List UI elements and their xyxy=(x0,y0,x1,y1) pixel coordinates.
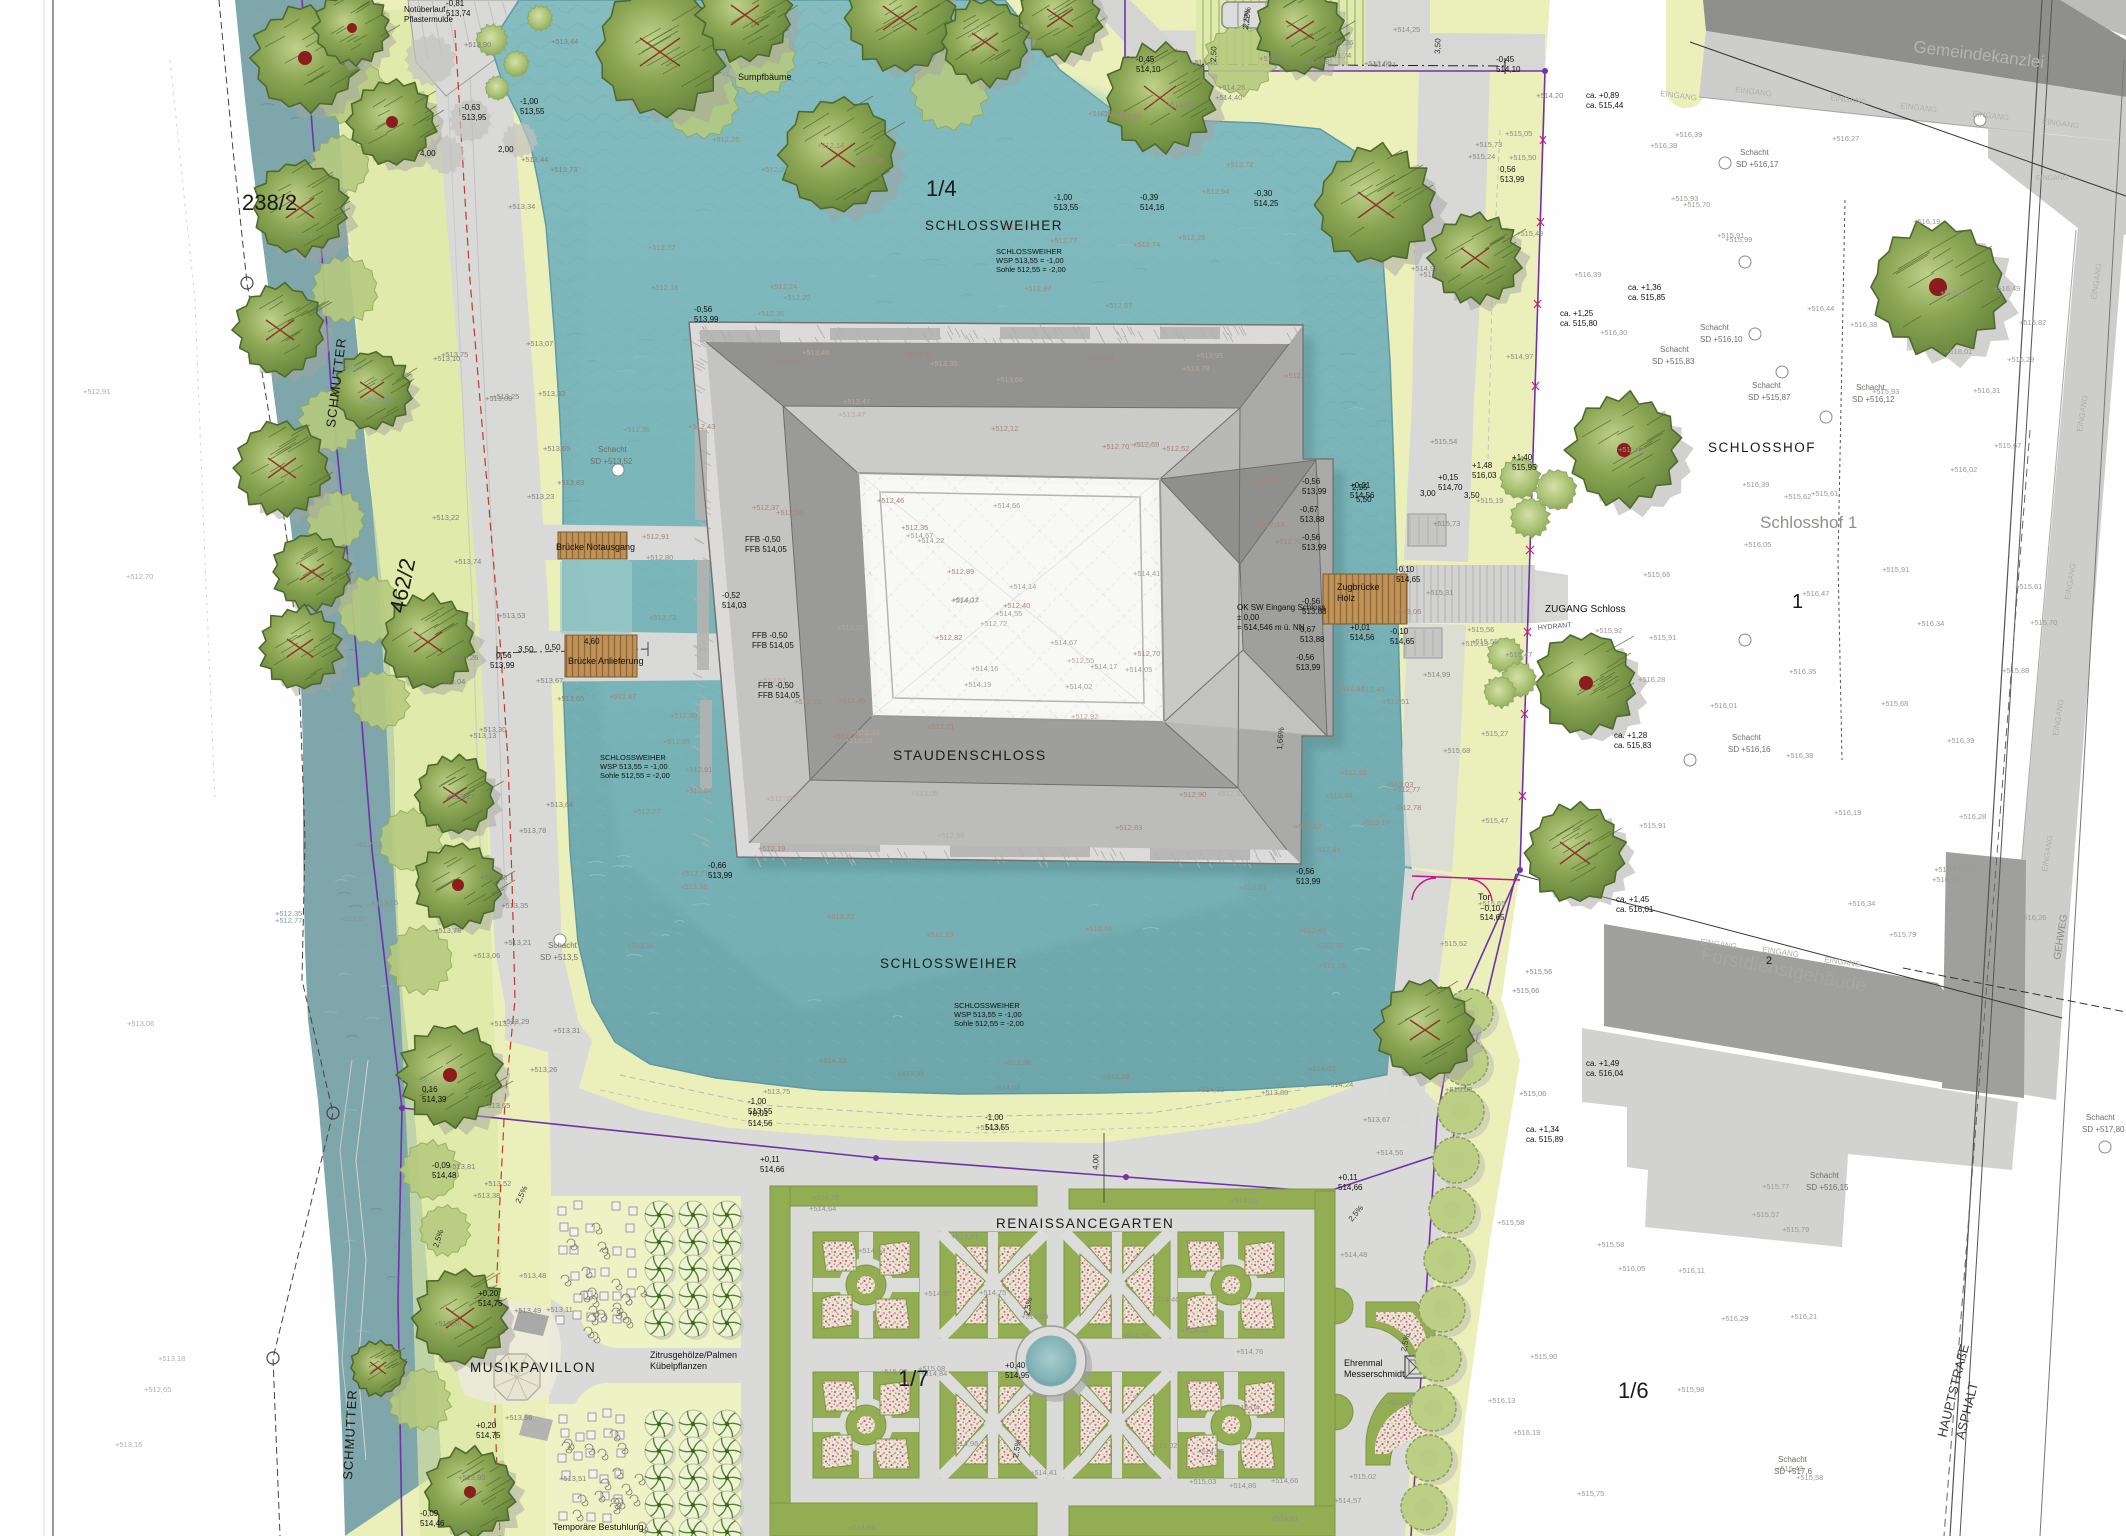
svg-text:514,75: 514,75 xyxy=(476,1431,501,1440)
svg-text:+514,67: +514,67 xyxy=(1050,638,1077,647)
svg-text:+512,72: +512,72 xyxy=(1226,160,1253,169)
svg-text:Messerschmidt: Messerschmidt xyxy=(1344,1369,1405,1379)
svg-text:Sohle 512,55 = -2,00: Sohle 512,55 = -2,00 xyxy=(954,1019,1024,1028)
svg-text:513,99: 513,99 xyxy=(1296,877,1321,886)
svg-text:+512,70: +512,70 xyxy=(1133,649,1160,658)
svg-text:ca. 515,85: ca. 515,85 xyxy=(1628,293,1666,302)
svg-text:+516,30: +516,30 xyxy=(1600,328,1627,337)
svg-text:+0,11: +0,11 xyxy=(1338,1173,1358,1182)
svg-text:+512,46: +512,46 xyxy=(838,696,865,705)
svg-text:+515,67: +515,67 xyxy=(1994,441,2021,450)
svg-text:+512,83: +512,83 xyxy=(1115,823,1142,832)
svg-text:+515,06: +515,06 xyxy=(1519,1089,1546,1098)
svg-text:+514,07: +514,07 xyxy=(1308,1064,1335,1073)
svg-text:+515,24: +515,24 xyxy=(1468,152,1495,161)
svg-text:+515,82: +515,82 xyxy=(2019,318,2046,327)
svg-text:+512,24: +512,24 xyxy=(355,840,382,849)
svg-text:+515,03: +515,03 xyxy=(1189,1477,1216,1486)
svg-text:+512,40: +512,40 xyxy=(1357,685,1384,694)
svg-text:+512,92: +512,92 xyxy=(1071,712,1098,721)
svg-text:514,10: 514,10 xyxy=(1496,65,1521,74)
svg-text:+512,98: +512,98 xyxy=(937,831,964,840)
svg-text:+514,55: +514,55 xyxy=(1122,1331,1149,1340)
svg-text:-0,56: -0,56 xyxy=(1296,867,1315,876)
svg-text:513,55: 513,55 xyxy=(748,1107,773,1116)
svg-text:513,88: 513,88 xyxy=(1302,607,1327,616)
svg-text:+516,47: +516,47 xyxy=(1802,589,1829,598)
svg-text:ca. 516,04: ca. 516,04 xyxy=(1586,1069,1624,1078)
svg-text:+515,05: +515,05 xyxy=(1505,129,1532,138)
svg-text:-0,81: -0,81 xyxy=(446,0,465,8)
svg-text:+512,77: +512,77 xyxy=(633,807,660,816)
svg-text:+513,30: +513,30 xyxy=(479,725,506,734)
svg-text:Schacht: Schacht xyxy=(1740,148,1770,157)
svg-text:+512,28: +512,28 xyxy=(364,396,391,405)
svg-text:+512,80: +512,80 xyxy=(646,553,673,562)
svg-text:+514,26: +514,26 xyxy=(812,1193,839,1202)
svg-text:FFB -0,50: FFB -0,50 xyxy=(758,681,794,690)
svg-text:Schacht: Schacht xyxy=(598,445,628,454)
svg-text:+516,19: +516,19 xyxy=(1913,217,1940,226)
svg-text:-0,52: -0,52 xyxy=(722,591,741,600)
svg-text:-1,00: -1,00 xyxy=(985,1113,1004,1122)
svg-text:+515,61: +515,61 xyxy=(1811,489,1838,498)
svg-text:+515,66: +515,66 xyxy=(1512,986,1539,995)
svg-text:+516,28: +516,28 xyxy=(1638,675,1665,684)
svg-text:1/6: 1/6 xyxy=(1618,1378,1649,1403)
svg-text:± 0,00: ± 0,00 xyxy=(1237,613,1260,622)
svg-text:514,66: 514,66 xyxy=(760,1165,785,1174)
svg-text:+513,09: +513,09 xyxy=(485,394,512,403)
svg-text:+513,07: +513,07 xyxy=(526,339,553,348)
svg-text:+512,26: +512,26 xyxy=(712,135,739,144)
svg-text:+512,69: +512,69 xyxy=(774,357,801,366)
svg-text:+515,57: +515,57 xyxy=(1752,1210,1779,1219)
svg-text:-0,56: -0,56 xyxy=(1302,477,1321,486)
svg-text:+512,18: +512,18 xyxy=(651,283,678,292)
svg-text:+514,40: +514,40 xyxy=(1215,93,1242,102)
svg-text:+513,51: +513,51 xyxy=(559,1474,586,1483)
svg-text:+512,70: +512,70 xyxy=(1275,537,1302,546)
svg-text:+515,52: +515,52 xyxy=(1440,939,1467,948)
svg-text:+514,55: +514,55 xyxy=(995,609,1022,618)
svg-text:4,00: 4,00 xyxy=(1091,1154,1101,1170)
svg-text:+513,67: +513,67 xyxy=(1363,1115,1390,1124)
svg-text:Tor: Tor xyxy=(1478,892,1491,902)
svg-text:MUSIKPAVILLON: MUSIKPAVILLON xyxy=(470,1360,596,1375)
svg-text:Temporäre Bestuhlung: Temporäre Bestuhlung xyxy=(553,1522,644,1532)
svg-text:+513,18: +513,18 xyxy=(680,882,707,891)
svg-text:+515,68: +515,68 xyxy=(1443,746,1470,755)
svg-text:+513,66: +513,66 xyxy=(1364,59,1391,68)
svg-text:+1,48: +1,48 xyxy=(1472,461,1493,470)
svg-text:+514,75: +514,75 xyxy=(979,1288,1006,1297)
svg-text:Notüberlauf: Notüberlauf xyxy=(404,5,446,14)
svg-text:-0,39: -0,39 xyxy=(1140,193,1159,202)
svg-text:+513,49: +513,49 xyxy=(514,1306,541,1315)
svg-text:Schacht: Schacht xyxy=(2086,1113,2116,1122)
svg-text:+515,58: +515,58 xyxy=(1497,1218,1524,1227)
svg-text:+515,02: +515,02 xyxy=(1349,1472,1376,1481)
svg-text:513,99: 513,99 xyxy=(708,871,733,880)
svg-text:+516,21: +516,21 xyxy=(1790,1312,1817,1321)
svg-text:+515,84: +515,84 xyxy=(1940,288,1967,297)
svg-text:+514,09: +514,09 xyxy=(1259,54,1286,63)
svg-text:+512,95: +512,95 xyxy=(623,425,650,434)
svg-text:Schacht: Schacht xyxy=(548,941,578,950)
svg-text:+513,56: +513,56 xyxy=(505,1413,532,1422)
svg-text:+512,71: +512,71 xyxy=(927,722,954,731)
svg-text:+515,93: +515,93 xyxy=(1671,194,1698,203)
svg-text:+515,56: +515,56 xyxy=(1467,625,1494,634)
svg-text:+515,73: +515,73 xyxy=(1475,140,1502,149)
svg-text:+512,77: +512,77 xyxy=(275,916,302,925)
svg-text:+513,47: +513,47 xyxy=(843,397,870,406)
svg-text:+513,65: +513,65 xyxy=(543,444,570,453)
svg-text:+515,92: +515,92 xyxy=(1595,626,1622,635)
svg-text:516,03: 516,03 xyxy=(1472,471,1497,480)
svg-text:+516,38: +516,38 xyxy=(1650,141,1677,150)
svg-text:+512,23: +512,23 xyxy=(926,930,953,939)
svg-text:-0,56: -0,56 xyxy=(1296,653,1315,662)
svg-text:+513,65: +513,65 xyxy=(557,694,584,703)
svg-text:+515,08: +515,08 xyxy=(1445,1085,1472,1094)
svg-text:+516,19: +516,19 xyxy=(1834,808,1861,817)
svg-text:+515,73: +515,73 xyxy=(1433,519,1460,528)
svg-text:+515,91: +515,91 xyxy=(1882,565,1909,574)
svg-text:+516,27: +516,27 xyxy=(1832,134,1859,143)
svg-text:238/2: 238/2 xyxy=(242,190,297,215)
svg-text:+512,87: +512,87 xyxy=(609,692,636,701)
svg-text:+515,61: +515,61 xyxy=(2015,582,2042,591)
svg-text:Schacht: Schacht xyxy=(1856,383,1886,392)
svg-text:+513,42: +513,42 xyxy=(1130,440,1157,449)
svg-text:= 514,546 m ü. NN: = 514,546 m ü. NN xyxy=(1237,623,1305,632)
svg-text:+512,91: +512,91 xyxy=(685,765,712,774)
svg-text:514,10: 514,10 xyxy=(1136,65,1161,74)
svg-text:+514,36: +514,36 xyxy=(1326,38,1353,47)
svg-text:+514,48: +514,48 xyxy=(1340,1250,1367,1259)
svg-text:Schacht: Schacht xyxy=(1700,323,1730,332)
svg-text:+515,70: +515,70 xyxy=(2030,618,2057,627)
svg-text:3,50: 3,50 xyxy=(1433,38,1443,54)
svg-text:513,55: 513,55 xyxy=(985,1123,1010,1132)
svg-text:+515,88: +515,88 xyxy=(2002,666,2029,675)
svg-text:+0,40: +0,40 xyxy=(1005,1361,1026,1370)
svg-text:+516,11: +516,11 xyxy=(1678,1266,1705,1275)
svg-text:+512,31: +512,31 xyxy=(905,350,932,359)
svg-text:+512,13: +512,13 xyxy=(1257,520,1284,529)
svg-text:+512,72: +512,72 xyxy=(648,243,675,252)
svg-text:+513,80: +513,80 xyxy=(458,1473,485,1482)
svg-text:+513,53: +513,53 xyxy=(498,611,525,620)
svg-text:+516,01: +516,01 xyxy=(1710,701,1737,710)
svg-text:ca. 515,44: ca. 515,44 xyxy=(1586,101,1624,110)
svg-text:Schacht: Schacht xyxy=(1752,381,1782,390)
svg-text:SD +513,5: SD +513,5 xyxy=(540,953,579,962)
svg-text:+0,20: +0,20 xyxy=(476,1421,497,1430)
svg-text:+513,83: +513,83 xyxy=(557,478,584,487)
svg-text:+516,01: +516,01 xyxy=(1945,347,1972,356)
svg-text:+515,68: +515,68 xyxy=(1881,699,1908,708)
svg-text:513,88: 513,88 xyxy=(1300,635,1325,644)
svg-text:514,25: 514,25 xyxy=(1254,199,1279,208)
svg-text:+513,44: +513,44 xyxy=(521,155,548,164)
svg-text:+514,23: +514,23 xyxy=(819,1056,846,1065)
svg-text:FFB -0,50: FFB -0,50 xyxy=(745,535,781,544)
svg-text:+512,97: +512,97 xyxy=(1105,301,1132,310)
svg-text:+513,05: +513,05 xyxy=(911,789,938,798)
svg-text:514,65: 514,65 xyxy=(1390,637,1415,646)
svg-text:+512,72: +512,72 xyxy=(827,912,854,921)
svg-text:+515,99: +515,99 xyxy=(1725,235,1752,244)
svg-text:+513,66: +513,66 xyxy=(996,375,1023,384)
svg-text:+514,26: +514,26 xyxy=(1218,83,1245,92)
svg-text:4,60: 4,60 xyxy=(584,637,600,646)
svg-text:+512,74: +512,74 xyxy=(1087,353,1114,362)
svg-text:Brücke Anlieferung: Brücke Anlieferung xyxy=(568,656,644,666)
svg-text:+514,65: +514,65 xyxy=(1197,1447,1224,1456)
svg-text:+513,67: +513,67 xyxy=(536,676,563,685)
svg-text:ca. 516,01: ca. 516,01 xyxy=(1616,905,1654,914)
svg-text:513,74: 513,74 xyxy=(446,9,471,18)
svg-text:-0,30: -0,30 xyxy=(1254,189,1273,198)
svg-text:+513,47: +513,47 xyxy=(838,410,865,419)
svg-text:SD +517,6: SD +517,6 xyxy=(1774,1467,1813,1476)
svg-text:+512,67: +512,67 xyxy=(340,914,367,923)
svg-text:+514,05: +514,05 xyxy=(1125,665,1152,674)
svg-text:+515,91: +515,91 xyxy=(1649,633,1676,642)
svg-text:+513,44: +513,44 xyxy=(551,37,578,46)
svg-text:Schacht: Schacht xyxy=(1778,1455,1808,1464)
svg-text:+512,55: +512,55 xyxy=(1067,656,1094,665)
svg-text:+513,10: +513,10 xyxy=(433,354,460,363)
svg-text:+514,20: +514,20 xyxy=(1536,91,1563,100)
svg-text:+516,49: +516,49 xyxy=(1993,284,2020,293)
svg-text:WSP 513,55 = -1,00: WSP 513,55 = -1,00 xyxy=(996,256,1064,265)
svg-text:+512,15: +512,15 xyxy=(1318,961,1345,970)
svg-text:Zitrusgehölze/Palmen: Zitrusgehölze/Palmen xyxy=(650,1350,737,1360)
svg-text:+0,01: +0,01 xyxy=(1350,623,1371,632)
svg-text:+513,52: +513,52 xyxy=(484,1179,511,1188)
svg-text:+513,17: +513,17 xyxy=(1362,818,1389,827)
svg-text:Sohle 512,55 = -2,00: Sohle 512,55 = -2,00 xyxy=(600,771,670,780)
svg-text:FFB 514,05: FFB 514,05 xyxy=(752,641,794,650)
svg-text:-1,00: -1,00 xyxy=(520,97,539,106)
svg-text:+515,86: +515,86 xyxy=(1618,445,1645,454)
svg-text:+0,11: +0,11 xyxy=(760,1155,780,1164)
svg-text:Ehrenmal: Ehrenmal xyxy=(1344,1358,1383,1368)
svg-text:1/4: 1/4 xyxy=(926,176,957,201)
svg-text:+514,07: +514,07 xyxy=(951,596,978,605)
svg-text:+512,54: +512,54 xyxy=(400,1075,427,1084)
svg-text:+513,10: +513,10 xyxy=(845,736,872,745)
svg-text:+512,70: +512,70 xyxy=(126,572,153,581)
svg-text:+512,46: +512,46 xyxy=(1085,924,1112,933)
svg-text:+516,38: +516,38 xyxy=(1786,751,1813,760)
svg-text:+515,77: +515,77 xyxy=(1762,1182,1789,1191)
svg-text:ca. 515,80: ca. 515,80 xyxy=(1560,319,1598,328)
svg-text:+512,84: +512,84 xyxy=(685,786,712,795)
svg-text:+514,53: +514,53 xyxy=(1230,1196,1257,1205)
svg-text:+516,29: +516,29 xyxy=(2007,355,2034,364)
svg-text:-1,00: -1,00 xyxy=(1054,193,1073,202)
svg-text:-0,56: -0,56 xyxy=(1302,533,1321,542)
svg-text:+0,20: +0,20 xyxy=(478,1289,499,1298)
svg-text:+515,31: +515,31 xyxy=(1426,588,1453,597)
svg-text:-0,67: -0,67 xyxy=(1300,505,1319,514)
svg-text:513,88: 513,88 xyxy=(1300,515,1325,524)
svg-text:+514,42: +514,42 xyxy=(858,1246,885,1255)
svg-text:+515,90: +515,90 xyxy=(1530,1352,1557,1361)
svg-text:ca. +1,36: ca. +1,36 xyxy=(1628,283,1662,292)
svg-text:4,00: 4,00 xyxy=(420,149,436,158)
svg-text:+512,82: +512,82 xyxy=(935,633,962,642)
svg-text:ca. +1,34: ca. +1,34 xyxy=(1526,1125,1560,1134)
svg-text:STAUDENSCHLOSS: STAUDENSCHLOSS xyxy=(893,747,1047,763)
svg-text:+514,81: +514,81 xyxy=(1271,1514,1298,1523)
svg-text:RENAISSANCEGARTEN: RENAISSANCEGARTEN xyxy=(996,1216,1174,1231)
svg-text:+512,97: +512,97 xyxy=(1024,284,1051,293)
svg-text:SCHLOSSWEIHER: SCHLOSSWEIHER xyxy=(600,753,666,762)
svg-text:514,48: 514,48 xyxy=(432,1171,457,1180)
svg-text:+512,71: +512,71 xyxy=(1284,371,1311,380)
svg-text:+513,04: +513,04 xyxy=(438,677,465,686)
svg-text:513,55: 513,55 xyxy=(1054,203,1079,212)
svg-text:+514,59: +514,59 xyxy=(1386,1398,1413,1407)
svg-text:-0,66: -0,66 xyxy=(708,861,727,870)
svg-text:+512,51: +512,51 xyxy=(776,508,803,517)
svg-text:+512,52: +512,52 xyxy=(1162,444,1189,453)
svg-text:SD +515,83: SD +515,83 xyxy=(1652,357,1695,366)
svg-text:Holz: Holz xyxy=(1337,593,1356,603)
svg-text:+513,95: +513,95 xyxy=(1196,351,1223,360)
svg-text:+514,66: +514,66 xyxy=(1271,1476,1298,1485)
svg-text:3,50: 3,50 xyxy=(518,645,534,654)
svg-text:+512,85: +512,85 xyxy=(663,737,690,746)
svg-text:513,99: 513,99 xyxy=(694,315,719,324)
svg-text:-0,09: -0,09 xyxy=(432,1161,451,1170)
svg-text:+516,02: +516,02 xyxy=(1950,465,1977,474)
svg-text:SD +516,12: SD +516,12 xyxy=(1852,395,1895,404)
svg-text:514,56: 514,56 xyxy=(748,1119,773,1128)
svg-text:SD +516,17: SD +516,17 xyxy=(1736,160,1779,169)
svg-text:+512,57: +512,57 xyxy=(1217,789,1244,798)
svg-text:514,75: 514,75 xyxy=(478,1299,503,1308)
svg-text:+512,15: +512,15 xyxy=(1253,476,1280,485)
svg-text:+513,64: +513,64 xyxy=(546,800,573,809)
svg-text:+514,88: +514,88 xyxy=(848,1523,875,1532)
svg-text:+512,70: +512,70 xyxy=(1102,442,1129,451)
svg-text:+513,31: +513,31 xyxy=(553,1026,580,1035)
svg-text:5,50: 5,50 xyxy=(1356,495,1372,504)
svg-text:513,99: 513,99 xyxy=(490,661,515,670)
svg-text:1: 1 xyxy=(1792,591,1803,613)
svg-text:+515,91: +515,91 xyxy=(1639,821,1666,830)
svg-text:+515,50: +515,50 xyxy=(1509,153,1536,162)
svg-text:+512,72: +512,72 xyxy=(980,619,1007,628)
svg-text:SD +513,52: SD +513,52 xyxy=(590,457,633,466)
svg-text:EINGANG: EINGANG xyxy=(2036,175,2068,182)
svg-text:+513,90: +513,90 xyxy=(464,40,491,49)
svg-text:514,65: 514,65 xyxy=(1396,575,1421,584)
svg-text:+514,48: +514,48 xyxy=(1302,57,1329,66)
svg-text:+512,14: +512,14 xyxy=(817,141,844,150)
svg-text:+514,03: +514,03 xyxy=(993,1083,1020,1092)
svg-text:+516,28: +516,28 xyxy=(1959,812,1986,821)
svg-text:513,99: 513,99 xyxy=(1296,663,1321,672)
svg-text:+515,49: +515,49 xyxy=(1516,229,1543,238)
svg-text:+513,26: +513,26 xyxy=(451,653,478,662)
svg-text:+516,23: +516,23 xyxy=(1932,875,1959,884)
svg-text:+513,58: +513,58 xyxy=(480,873,507,882)
svg-text:+515,79: +515,79 xyxy=(1782,1225,1809,1234)
svg-text:514,95: 514,95 xyxy=(1005,1371,1030,1380)
svg-text:514,03: 514,03 xyxy=(722,601,747,610)
svg-text:+515,79: +515,79 xyxy=(1889,930,1916,939)
svg-text:FFB 514,05: FFB 514,05 xyxy=(758,691,800,700)
svg-text:+513,03: +513,03 xyxy=(1386,780,1413,789)
svg-text:+514,32: +514,32 xyxy=(1197,1085,1224,1094)
svg-text:+513,73: +513,73 xyxy=(550,165,577,174)
svg-text:-0,56: -0,56 xyxy=(694,305,713,314)
svg-text:+513,81: +513,81 xyxy=(448,1162,475,1171)
svg-text:+512,60: +512,60 xyxy=(367,900,394,909)
svg-text:+516,34: +516,34 xyxy=(1848,899,1875,908)
svg-text:+515,02: +515,02 xyxy=(1150,1441,1177,1450)
svg-text:+514,86: +514,86 xyxy=(1229,1481,1256,1490)
svg-text:+512,94: +512,94 xyxy=(1202,187,1229,196)
svg-text:0,50: 0,50 xyxy=(545,643,561,652)
svg-text:+514,41: +514,41 xyxy=(1030,1468,1057,1477)
svg-text:+516,34: +516,34 xyxy=(1917,619,1944,628)
svg-text:+513,56: +513,56 xyxy=(434,1319,461,1328)
svg-text:+513,21: +513,21 xyxy=(504,938,531,947)
svg-text:+513,06: +513,06 xyxy=(473,951,500,960)
svg-text:+513,74: +513,74 xyxy=(454,557,481,566)
svg-text:2,00: 2,00 xyxy=(498,145,514,154)
svg-text:+513,06: +513,06 xyxy=(1394,607,1421,616)
svg-text:+512,23: +512,23 xyxy=(761,165,788,174)
svg-text:514,66: 514,66 xyxy=(1338,1183,1363,1192)
svg-text:+513,16: +513,16 xyxy=(627,941,654,950)
svg-text:514,39: 514,39 xyxy=(422,1095,447,1104)
svg-text:-1,00: -1,00 xyxy=(748,1097,767,1106)
svg-text:514,70: 514,70 xyxy=(1438,483,1463,492)
svg-text:+515,47: +515,47 xyxy=(1481,816,1508,825)
svg-text:+513,91: +513,91 xyxy=(897,1069,924,1078)
svg-text:Sohle 512,55 = -2,00: Sohle 512,55 = -2,00 xyxy=(996,265,1066,274)
svg-text:+513,23: +513,23 xyxy=(527,492,554,501)
svg-text:+516,38: +516,38 xyxy=(1850,320,1877,329)
svg-text:-0,45: -0,45 xyxy=(1136,55,1155,64)
svg-text:+512,95: +512,95 xyxy=(766,794,793,803)
svg-text:+1,40: +1,40 xyxy=(1512,453,1533,462)
svg-text:+515,04: +515,04 xyxy=(1232,1403,1259,1412)
svg-text:Brücke Notausgang: Brücke Notausgang xyxy=(556,542,635,552)
svg-text:+513,88: +513,88 xyxy=(1004,1058,1031,1067)
svg-text:Schacht: Schacht xyxy=(1732,733,1762,742)
svg-text:+514,48: +514,48 xyxy=(1181,1326,1208,1335)
svg-text:Sumpfbäume: Sumpfbäume xyxy=(738,72,792,82)
svg-text:+512,90: +512,90 xyxy=(670,711,697,720)
svg-text:+512,39: +512,39 xyxy=(1316,941,1343,950)
svg-text:WSP 513,55 = -1,00: WSP 513,55 = -1,00 xyxy=(954,1010,1022,1019)
svg-text:+515,98: +515,98 xyxy=(1677,1385,1704,1394)
svg-text:SD +515,87: SD +515,87 xyxy=(1748,393,1791,402)
svg-text:+513,35: +513,35 xyxy=(501,901,528,910)
svg-text:+513,11: +513,11 xyxy=(546,1305,573,1314)
